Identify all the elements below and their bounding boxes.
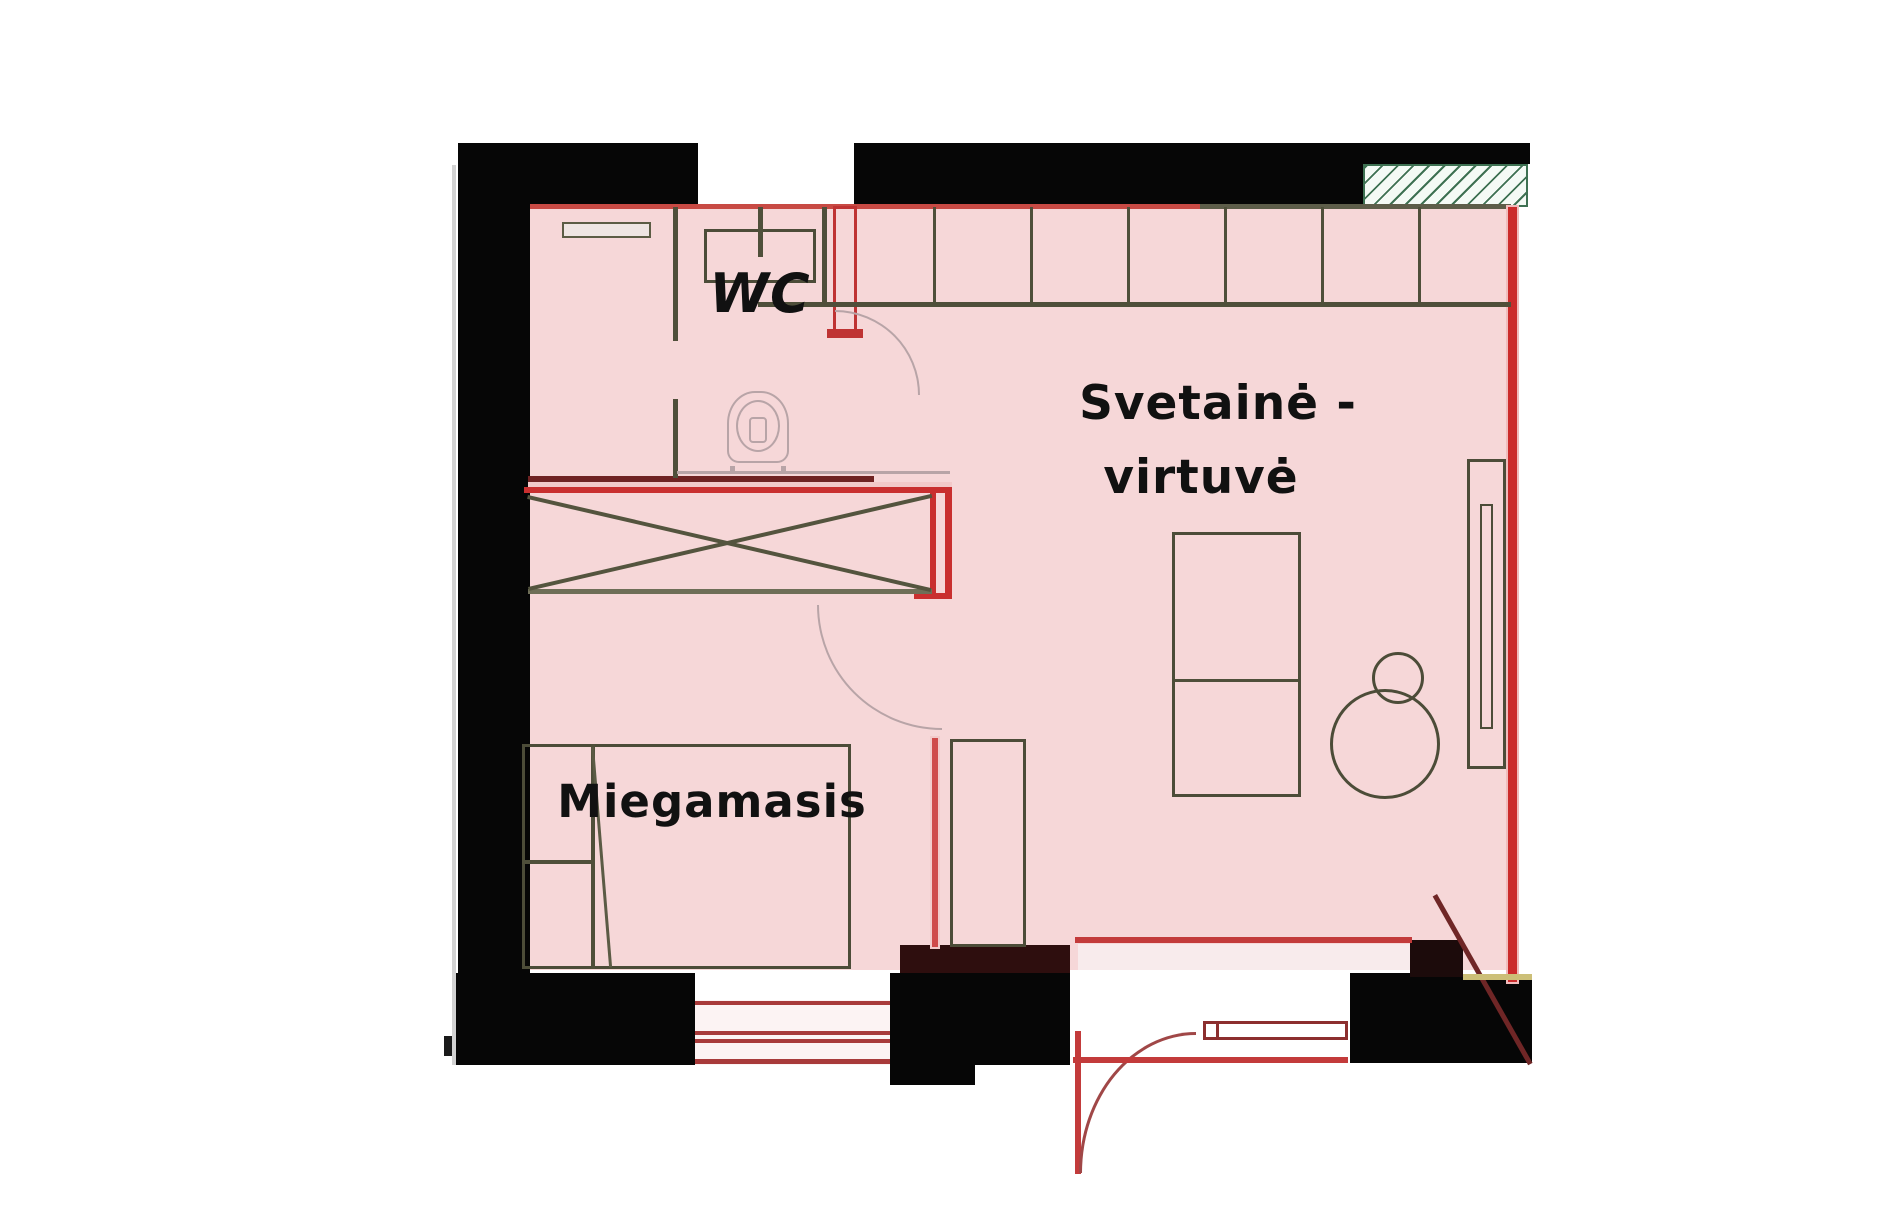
hall-shelf (562, 222, 651, 238)
radiator-slot (1480, 504, 1493, 729)
toilet-bolt-left (730, 466, 735, 471)
outer-edge-line (452, 165, 456, 1065)
wall-bottom-middle-stub (890, 1063, 975, 1085)
wc-partition-upper (673, 207, 678, 341)
entrance-floor-strip (1078, 944, 1412, 970)
wardrobe-red-right-outer (945, 487, 952, 599)
kitchen-cabinet-divider-1 (933, 207, 936, 307)
wardrobe-red-top (524, 487, 952, 493)
wall-strip-dark (900, 945, 1070, 973)
living-kitchen-label-line2: virtuvė (1031, 450, 1371, 505)
window-left-line-4 (695, 1059, 890, 1064)
bedroom-label: Miegamasis (532, 775, 892, 828)
kitchen-cabinet-divider-4 (1224, 207, 1227, 307)
kitchen-cabinet-divider-3 (1127, 207, 1130, 307)
hatched-area (1363, 164, 1528, 207)
wc-partition-lower (673, 399, 678, 478)
kitchen-cabinet-divider-6 (1418, 207, 1421, 307)
wall-left (458, 143, 530, 1065)
floor-plan: WC Svetainė - virtuvė Miegamasis (0, 0, 1900, 1213)
window-left-line-2 (695, 1031, 890, 1035)
wall-right-red (1508, 207, 1517, 982)
kitchen-cabinet-bottom-line (758, 302, 1511, 307)
wc-floor-line (677, 471, 950, 474)
wardrobe-olive-bottom (528, 589, 932, 594)
outer-edge-tick (444, 1036, 452, 1056)
wall-bottom-right-a (1350, 973, 1430, 1063)
entrance-threshold (1203, 1021, 1348, 1040)
wc-room-label: WC (698, 262, 822, 325)
entrance-inner-red-line (1075, 937, 1412, 943)
fridge (950, 739, 1026, 947)
entrance-threshold-divider (1216, 1021, 1219, 1040)
chair-back (1372, 652, 1424, 704)
threshold-yellow-line (1463, 974, 1532, 980)
top-edge-olive-line (1200, 204, 1511, 209)
kitchen-cabinet-divider-2 (1030, 207, 1033, 307)
wall-top-right-thin (1478, 143, 1530, 164)
wall-top-left (458, 143, 698, 208)
kitchen-cabinet-divider-5 (1321, 207, 1324, 307)
table-divider (1175, 679, 1298, 682)
window-left-line-3 (695, 1039, 890, 1043)
living-kitchen-label-line1: Svetainė - (1048, 376, 1388, 431)
chair-seat (1330, 689, 1440, 799)
toilet-bolt-right (781, 466, 786, 471)
window-left-line-1 (695, 1001, 890, 1005)
entrance-door-arc (1079, 1032, 1196, 1173)
sink-faucet (758, 207, 763, 257)
fridge-red-wall-line (932, 738, 938, 947)
table (1172, 532, 1301, 797)
bed-pillow-divider (522, 860, 592, 864)
wall-bottom-left (452, 973, 695, 1065)
wall-bottom-right-b (1410, 940, 1463, 977)
top-edge-red-line (530, 204, 1200, 209)
sink-nook-wall (822, 207, 827, 307)
entrance-outer-red-line (1073, 1057, 1348, 1063)
wall-bottom-right-c (1430, 977, 1532, 1063)
toilet-flush (749, 417, 767, 443)
wall-bottom-middle (890, 973, 1070, 1065)
wardrobe-red-right-inner (930, 493, 936, 596)
